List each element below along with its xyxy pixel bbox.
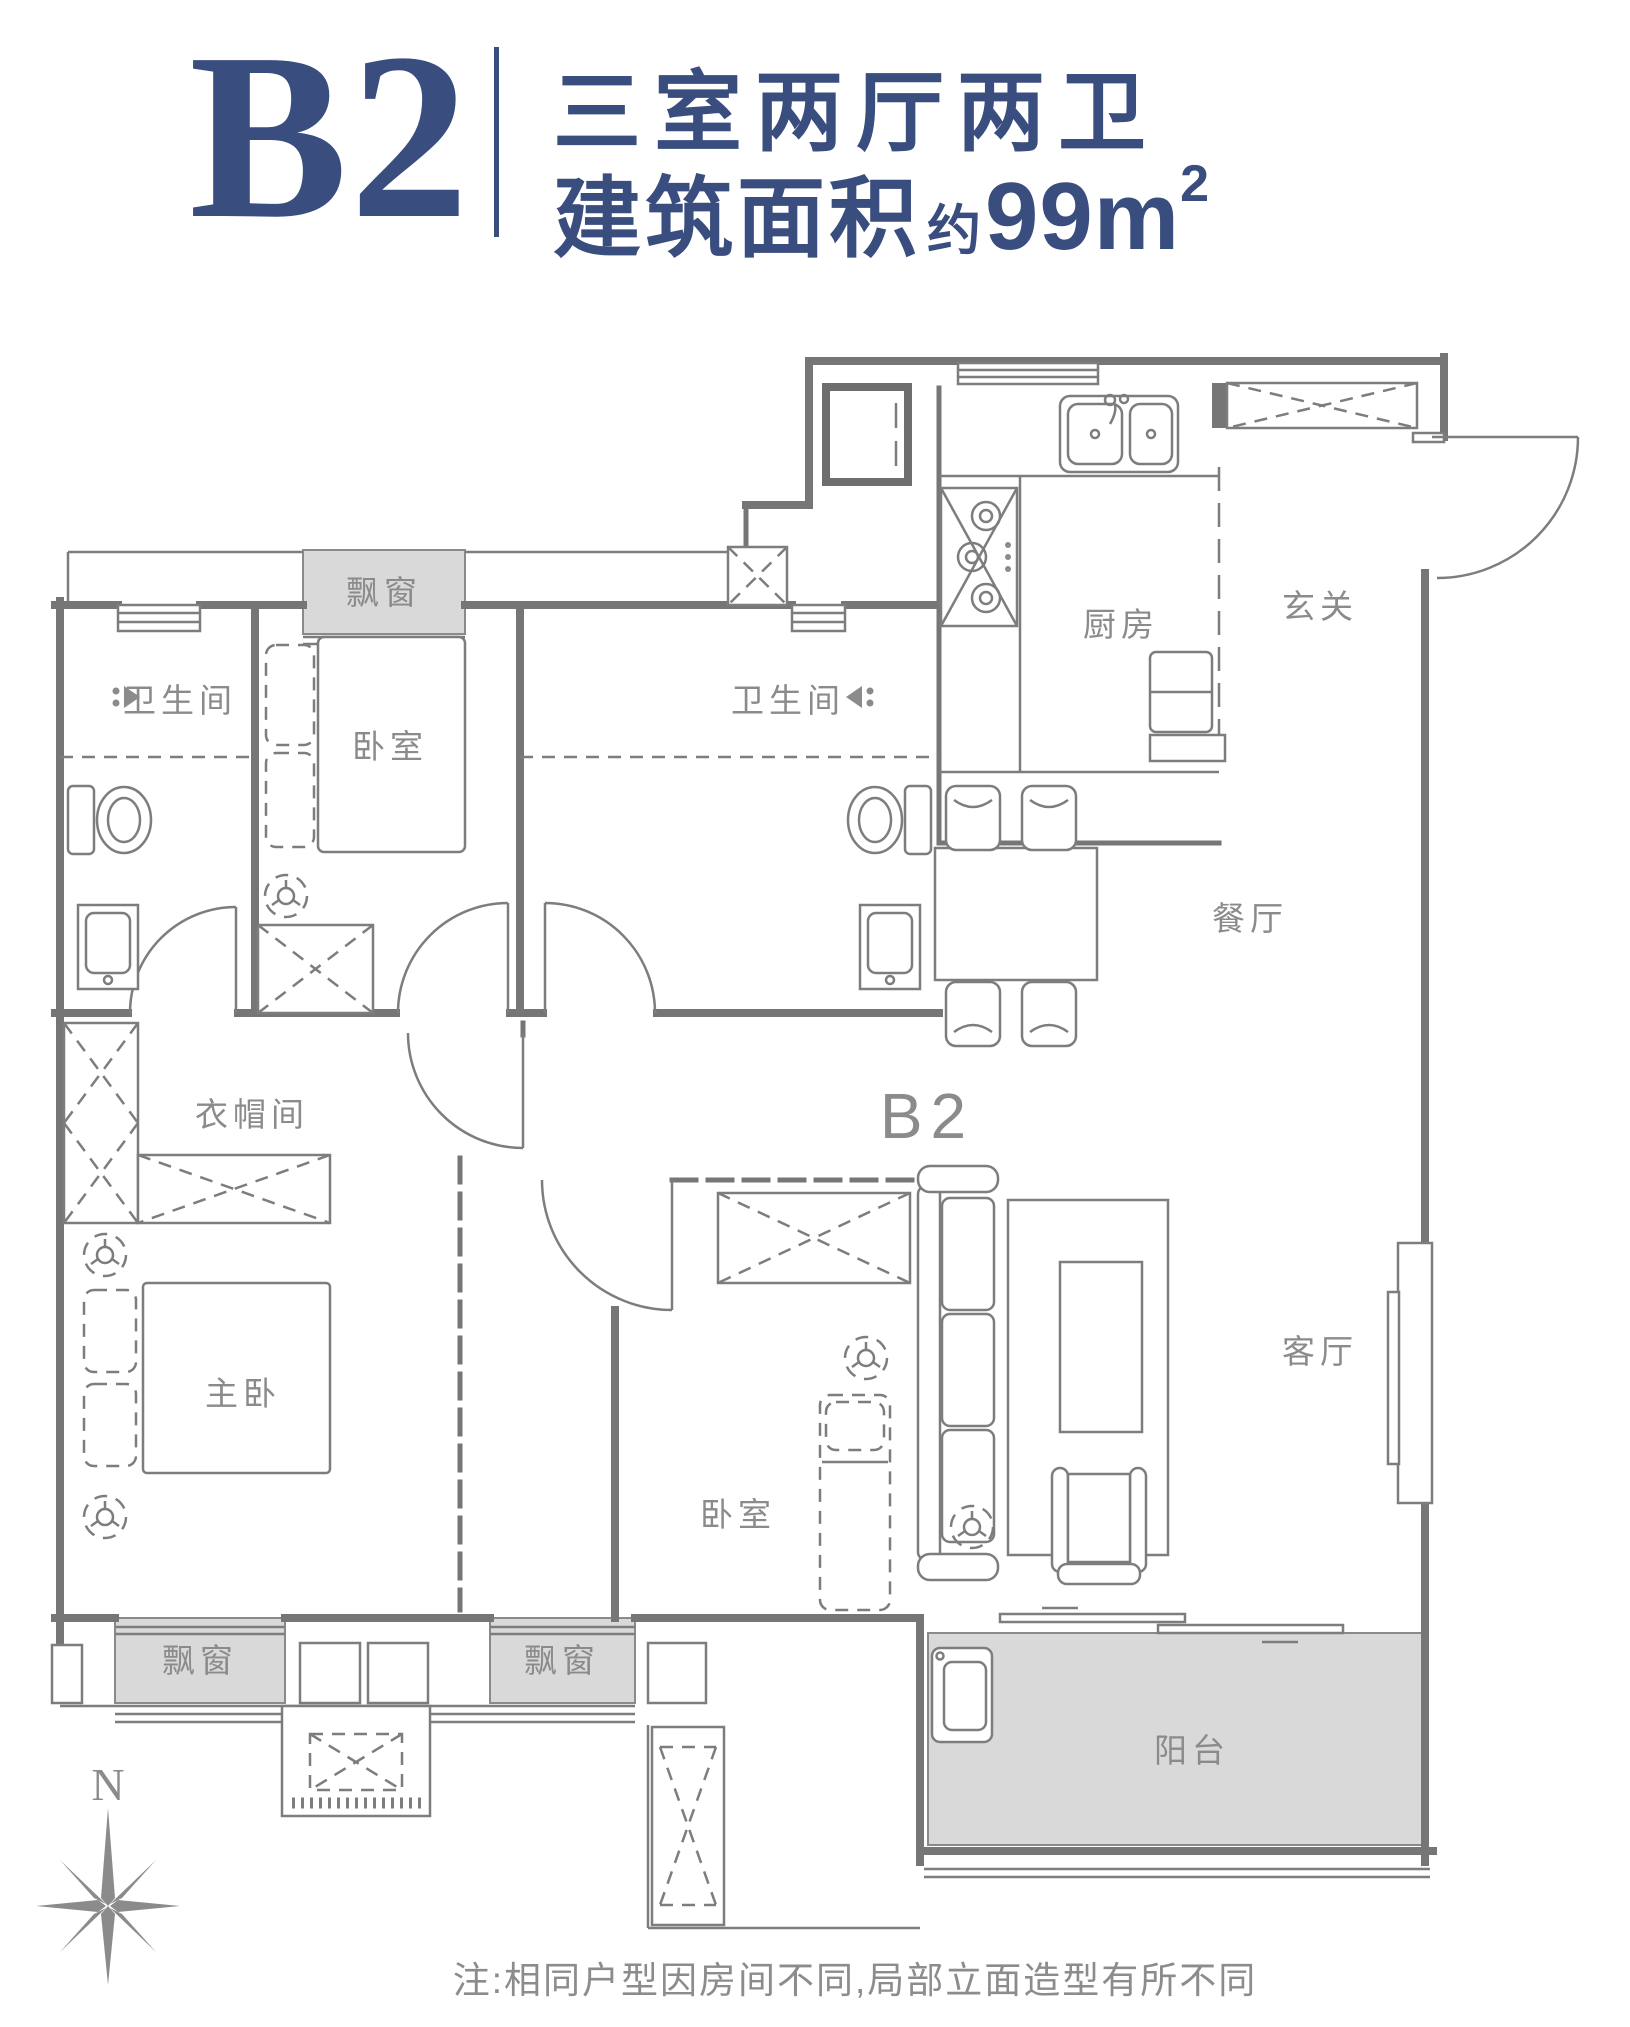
lounge-chair (1052, 1468, 1146, 1584)
master-bedroom: 主卧 (84, 1234, 330, 1538)
toilet-tank (905, 786, 931, 854)
bay-bedroom2-label: 飘窗 (524, 1642, 600, 1679)
bay-window-master: 飘窗 (115, 1618, 285, 1703)
bedroom1: 卧室 (258, 637, 465, 1013)
foyer-label: 玄关 (1282, 588, 1358, 625)
entrance-door (1413, 433, 1578, 578)
dining-table (935, 848, 1097, 980)
stove (941, 488, 1017, 626)
ceiling-fan-icon (845, 1337, 887, 1379)
balcony-label: 阳台 (1154, 1732, 1230, 1769)
toilet-tank (68, 786, 94, 854)
bay-window-bedroom2: 飘窗 (490, 1618, 635, 1703)
plan-unit-label: B2 (880, 1080, 974, 1152)
floorplan-page: B2 三室两厅两卫 建筑面积约99m2 飘窗 飘窗 (0, 0, 1630, 2027)
bath2-label: 卫生间 (731, 682, 845, 719)
bedroom2: 卧室 (700, 1193, 910, 1610)
wardrobe-column (64, 1023, 138, 1223)
bay-top-label: 飘窗 (346, 574, 422, 611)
kitchen: 厨房 (826, 387, 1225, 772)
bedroom1-label: 卧室 (352, 728, 428, 765)
shaft (826, 387, 908, 482)
master-label: 主卧 (205, 1375, 281, 1412)
living-label: 客厅 (1282, 1333, 1358, 1370)
foyer: 玄关 (1212, 383, 1417, 625)
dining-label: 餐厅 (1212, 900, 1288, 937)
floorplan-svg: 飘窗 飘窗 飘窗 (0, 0, 1630, 2027)
footnote: 注:相同户型因房间不同,局部立面造型有所不同 (453, 1960, 1258, 2001)
kitchen-sink (1060, 395, 1178, 472)
ac-platform-right (648, 1725, 920, 1928)
bath1-label: 卫生间 (123, 682, 237, 719)
ac-platform-left (282, 1706, 430, 1816)
bedroom2-label: 卧室 (700, 1496, 776, 1533)
bath2: 卫生间 (520, 547, 939, 989)
bay-master-label: 飘窗 (162, 1642, 238, 1679)
ceiling-fan-icon (84, 1496, 126, 1538)
tv-cabinet (1398, 1243, 1432, 1503)
cloakroom-label: 衣帽间 (195, 1096, 309, 1133)
bed (820, 1395, 890, 1610)
compass-north-label: N (91, 1759, 124, 1810)
coffee-table (1060, 1262, 1142, 1432)
bay-window-top: 飘窗 (303, 550, 465, 644)
cloakroom: 衣帽间 (64, 1023, 330, 1223)
living-room: 客厅 (918, 1166, 1432, 1642)
ceiling-fan-icon (265, 875, 307, 917)
kitchen-label: 厨房 (1083, 606, 1159, 643)
compass: N (36, 1759, 180, 1985)
ceiling-fan-icon (84, 1234, 126, 1276)
washing-machine (932, 1648, 992, 1742)
sofa (918, 1166, 998, 1580)
dining: 餐厅 (935, 786, 1288, 1046)
tv (1388, 1292, 1399, 1464)
